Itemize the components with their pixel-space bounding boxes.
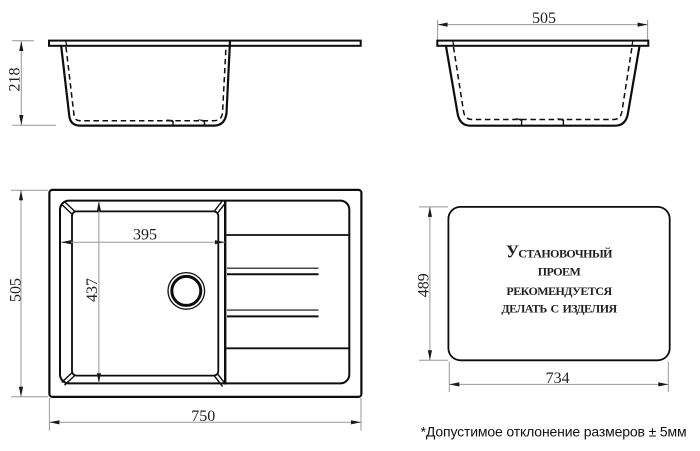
svg-text:505: 505 [8,278,25,302]
svg-text:505: 505 [532,10,556,27]
svg-text:395: 395 [133,227,157,244]
svg-text:Установочный: Установочный [506,242,613,262]
svg-text:*Допустимое отклонение размеро: *Допустимое отклонение размеров ± 5мм [421,424,687,440]
svg-text:218: 218 [7,68,24,92]
svg-text:437: 437 [84,278,101,302]
svg-text:делать с изделия: делать с изделия [501,297,617,317]
svg-text:489: 489 [415,273,432,297]
svg-text:проем: проем [538,260,581,280]
svg-text:750: 750 [191,408,215,425]
svg-text:734: 734 [546,370,570,387]
